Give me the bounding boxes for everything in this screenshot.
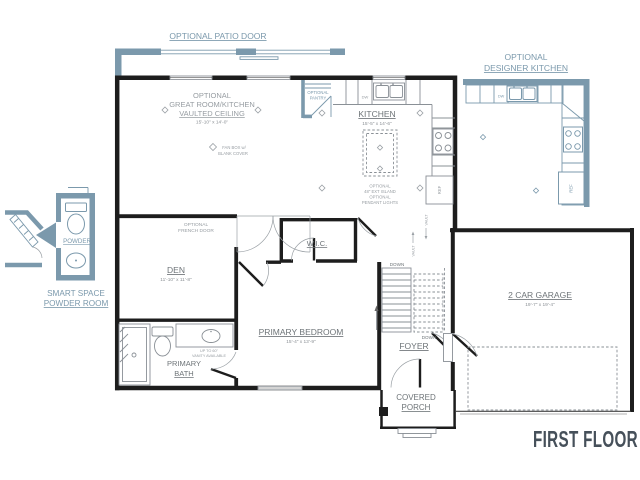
patio-wall-seg1 bbox=[121, 49, 161, 56]
primary-bedroom-dim: 15'-4" x 13'-9" bbox=[286, 339, 316, 345]
vanity-note-1: UP TO 60" bbox=[200, 349, 219, 353]
designer-sink-icon bbox=[507, 86, 537, 102]
stair-flight-right bbox=[414, 274, 443, 332]
refrigerator-icon: REF bbox=[426, 176, 453, 204]
window-kitchen-sink bbox=[373, 76, 405, 79]
garage-label: 2 CAR GARAGE bbox=[508, 290, 572, 300]
designer-diamond-icon bbox=[480, 135, 485, 140]
powder-left-wall-lower bbox=[56, 248, 61, 280]
french-door-label-2: FRENCH DOOR bbox=[178, 228, 214, 234]
den-dim: 11'-10" x 11'-8" bbox=[160, 277, 192, 283]
refrigerator-label: REF bbox=[437, 185, 442, 194]
great-room-dim: 15'-10" x 14'-0" bbox=[196, 120, 228, 126]
diamond-icon bbox=[319, 185, 325, 191]
designer-stove-icon bbox=[564, 127, 583, 152]
powder-caption-1: SMART SPACE bbox=[47, 289, 105, 298]
foyer-label: FOYER bbox=[399, 341, 428, 351]
wic-hall-door bbox=[358, 218, 376, 236]
covered-porch-label-2: PORCH bbox=[402, 403, 431, 412]
porch-step-1 bbox=[398, 429, 436, 434]
diamond-icon bbox=[417, 110, 423, 116]
designer-refrigerator-label: REF bbox=[569, 184, 574, 193]
window-bedroom bbox=[258, 386, 302, 390]
stairs-down-label-2: DOWN bbox=[422, 335, 437, 340]
garage-details bbox=[456, 347, 631, 414]
stairs: DOWN DOWN bbox=[375, 262, 445, 340]
vault-markers: VAULT VAULT bbox=[412, 214, 429, 257]
dishwasher-label: DW bbox=[362, 95, 369, 100]
diamond-icon bbox=[255, 107, 261, 113]
fan-box-label-2: BLANK COVER bbox=[218, 151, 248, 156]
toilet-icon bbox=[152, 327, 173, 356]
optional-pantry: OPTIONAL PANTRY bbox=[303, 80, 331, 118]
fan-box-icon bbox=[210, 144, 217, 151]
floor-plan-drawing: OPTIONAL PATIO DOOR bbox=[0, 0, 640, 480]
designer-kitchen-inset: OPTIONAL DESIGNER KITCHEN DW REF bbox=[463, 52, 590, 207]
kitchen-fixtures: DW REF bbox=[333, 80, 455, 204]
stair-treads-left bbox=[382, 274, 411, 328]
powder-left-wall-upper bbox=[56, 193, 61, 222]
interior-walls bbox=[115, 216, 379, 390]
designer-top-wall bbox=[463, 79, 589, 85]
doors bbox=[211, 216, 477, 388]
smart-space-wall-detail bbox=[5, 213, 42, 266]
diamond-icon bbox=[319, 110, 325, 116]
designer-dishwasher-label: DW bbox=[498, 95, 505, 99]
patio-door-detail: OPTIONAL PATIO DOOR bbox=[115, 31, 345, 76]
detail-arc bbox=[33, 247, 42, 258]
vanity-icon bbox=[176, 324, 233, 347]
powder-caption-2: POWDER ROOM bbox=[44, 299, 109, 308]
front-door bbox=[391, 359, 420, 388]
island-inner bbox=[367, 134, 394, 173]
pendant-icon bbox=[377, 166, 382, 171]
patio-wall-left-stub bbox=[115, 49, 122, 76]
primary-bath-label-2: BATH bbox=[174, 369, 193, 378]
designer-refrigerator-icon: REF bbox=[559, 172, 585, 204]
den-label: DEN bbox=[167, 265, 185, 275]
designer-kitchen-label-2: DESIGNER KITCHEN bbox=[484, 63, 568, 73]
bedroom-door bbox=[239, 262, 269, 286]
designer-kitchen-label-1: OPTIONAL bbox=[505, 52, 548, 62]
patio-sliding-panel bbox=[240, 57, 278, 60]
fan-box-label-1: FAN BOX w/ bbox=[222, 145, 246, 150]
pantry-label-1: OPTIONAL bbox=[307, 90, 329, 95]
powder-top-wall bbox=[56, 193, 95, 199]
vault-label-1: VAULT bbox=[425, 214, 429, 226]
french-door-label-1: OPTIONAL bbox=[184, 222, 209, 228]
sheet-title: FIRST FLOOR bbox=[533, 426, 638, 452]
window-great-room-2 bbox=[247, 76, 290, 79]
vault-arrow-head-2 bbox=[412, 232, 415, 236]
pendant-icon bbox=[377, 145, 382, 150]
vault-arrow-head-1 bbox=[425, 236, 428, 240]
garage-dim: 19'-7" x 19'-4" bbox=[525, 302, 555, 308]
diamond-icon bbox=[417, 185, 423, 191]
island-note-1: OPTIONAL bbox=[369, 184, 391, 189]
porch-step-2 bbox=[403, 434, 431, 438]
powder-label: POWDER bbox=[63, 238, 91, 245]
powder-bottom-wall bbox=[56, 275, 95, 281]
island-note-2: 48" EXT ISLAND bbox=[364, 189, 396, 194]
powder-room-inset: POWDER SMART SPACE POWDER ROOM bbox=[5, 188, 108, 309]
patio-door-label: OPTIONAL PATIO DOOR bbox=[169, 31, 266, 41]
patio-wall-seg2 bbox=[236, 49, 256, 56]
island-outline bbox=[363, 130, 397, 176]
shower-icon bbox=[119, 324, 150, 385]
french-door bbox=[237, 216, 310, 252]
designer-right-wall bbox=[584, 79, 590, 207]
kitchen-label: KITCHEN bbox=[358, 109, 395, 119]
great-room-label-1: OPTIONAL bbox=[193, 91, 231, 100]
island-note-3: OPTIONAL bbox=[369, 195, 391, 200]
powder-shelf-lines bbox=[68, 188, 88, 194]
great-room-label-3: VAULTED CEILING bbox=[179, 109, 245, 118]
patio-wall-seg3 bbox=[330, 49, 345, 56]
porch-post bbox=[379, 407, 388, 416]
primary-bedroom-label: PRIMARY BEDROOM bbox=[259, 327, 344, 337]
island-note-4: PENDANT LIGHTS bbox=[362, 200, 398, 205]
floor-plan-page: OPTIONAL PATIO DOOR bbox=[0, 0, 640, 480]
vanity-note-2: VANITY AVAILABLE bbox=[192, 354, 227, 358]
primary-bath-label-1: PRIMARY bbox=[167, 359, 201, 368]
stair-treads-right bbox=[414, 280, 443, 328]
powder-sink-icon bbox=[67, 253, 86, 268]
stove-icon bbox=[433, 129, 453, 154]
wic-label: W.I.C. bbox=[307, 239, 327, 248]
garage-entry-door bbox=[444, 334, 478, 362]
patio-glass-2 bbox=[256, 50, 330, 54]
diamond-icon bbox=[162, 107, 168, 113]
powder-right-wall bbox=[90, 193, 96, 280]
vault-label-2: VAULT bbox=[412, 245, 416, 257]
pantry-shelves bbox=[305, 84, 331, 88]
covered-porch-label-1: COVERED bbox=[396, 393, 436, 402]
great-room-label-2: GREAT ROOM/KITCHEN bbox=[169, 100, 255, 109]
kitchen-sink-icon bbox=[374, 83, 405, 100]
kitchen-dim: 15'-5" x 14'-6" bbox=[362, 121, 392, 127]
stairs-down-label-1: DOWN bbox=[390, 262, 405, 267]
pantry-label-2: PANTRY bbox=[310, 96, 327, 101]
patio-glass-1 bbox=[161, 50, 236, 54]
pocket-door-hatch bbox=[14, 219, 34, 241]
designer-diamond-icon bbox=[533, 188, 538, 193]
powder-toilet-icon bbox=[66, 203, 87, 234]
window-great-room-1 bbox=[170, 76, 212, 79]
garage-door-dashed bbox=[468, 347, 617, 410]
